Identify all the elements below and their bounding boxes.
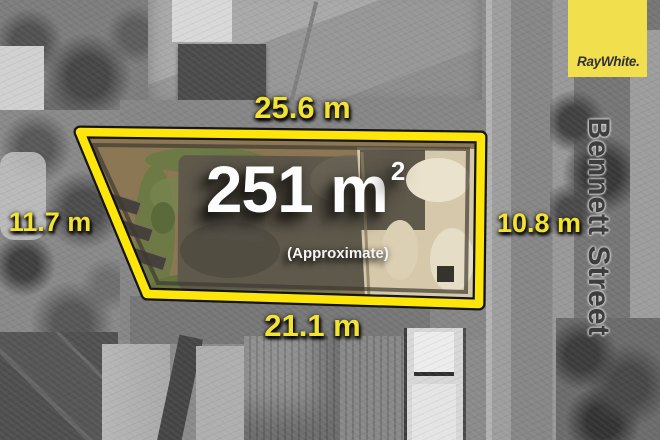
raywhite-logo-text: RayWhite. [577, 54, 640, 69]
area-number: 251 m [206, 152, 388, 226]
area-superscript: 2 [391, 156, 404, 186]
measurement-right: 10.8 m [486, 210, 592, 237]
measurement-top: 25.6 m [225, 92, 380, 123]
measurement-left: 11.7 m [0, 209, 102, 236]
raywhite-logo: RayWhite. [568, 0, 647, 77]
listing-image: 25.6 m 11.7 m 10.8 m 21.1 m 251 m2 (Appr… [0, 0, 660, 440]
street-name-label: Bennett Street [578, 77, 618, 377]
area-qualifier: (Approximate) [268, 245, 408, 262]
measurement-bottom: 21.1 m [235, 310, 390, 341]
slab-dark-square [437, 266, 454, 282]
area-value: 251 m2 [165, 156, 445, 222]
